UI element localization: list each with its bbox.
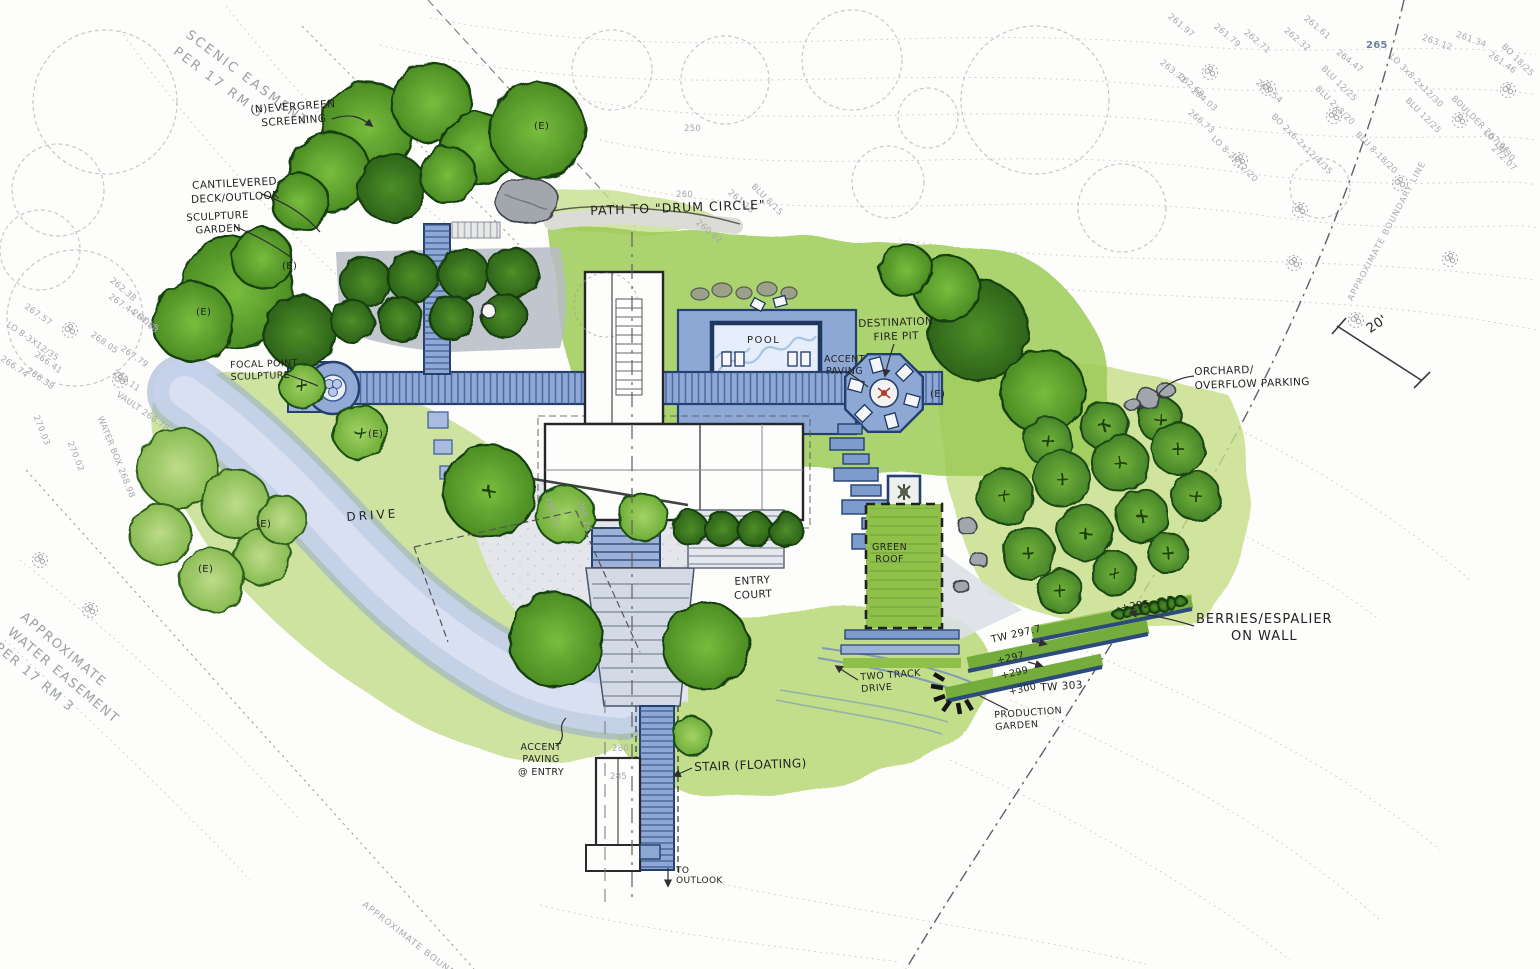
label-accent-paving-entry: ACCENT PAVING @ ENTRY: [518, 742, 564, 779]
existing-tree-tag: (E): [368, 428, 383, 441]
label-two-track-drive: TWO TRACK DRIVE: [860, 668, 922, 697]
label-destination-fire-pit: DESTINATION FIRE PIT: [858, 315, 934, 345]
label-pool: POOL: [747, 334, 780, 347]
label-green-roof: GREEN ROOF: [872, 542, 907, 567]
label-entry-court: ENTRY COURT: [733, 574, 773, 603]
label-sculpture-garden: SCULPTURE GARDEN: [186, 209, 250, 238]
existing-tree-tag: (E): [198, 563, 213, 576]
site-plan-drawing: [0, 0, 1540, 969]
label-production-garden: PRODUCTION GARDEN: [994, 705, 1063, 734]
label-accent-paving: ACCENT PAVING: [824, 354, 865, 379]
label-focal-point-sculpture: FOCAL POINT SCULPTURE: [230, 358, 299, 385]
existing-tree-tag: (E): [282, 260, 297, 273]
existing-tree-tag: (E): [930, 388, 945, 401]
existing-tree-tag: (E): [256, 518, 271, 531]
label-berries-espalier: BERRIES/ESPALIER ON WALL: [1196, 612, 1333, 646]
label-orchard-overflow: ORCHARD/ OVERFLOW PARKING: [1194, 362, 1310, 393]
site-plan-canvas: 261.97261.79262.71262.32261.61264.472652…: [0, 0, 1540, 969]
label-to-outlook: TO OUTLOOK: [676, 866, 723, 887]
existing-tree-tag: (E): [534, 120, 549, 133]
existing-tree-tag: (E): [196, 306, 211, 319]
label-cantilevered-deck: CANTILEVERED DECK/OUTLOOK: [190, 175, 280, 207]
